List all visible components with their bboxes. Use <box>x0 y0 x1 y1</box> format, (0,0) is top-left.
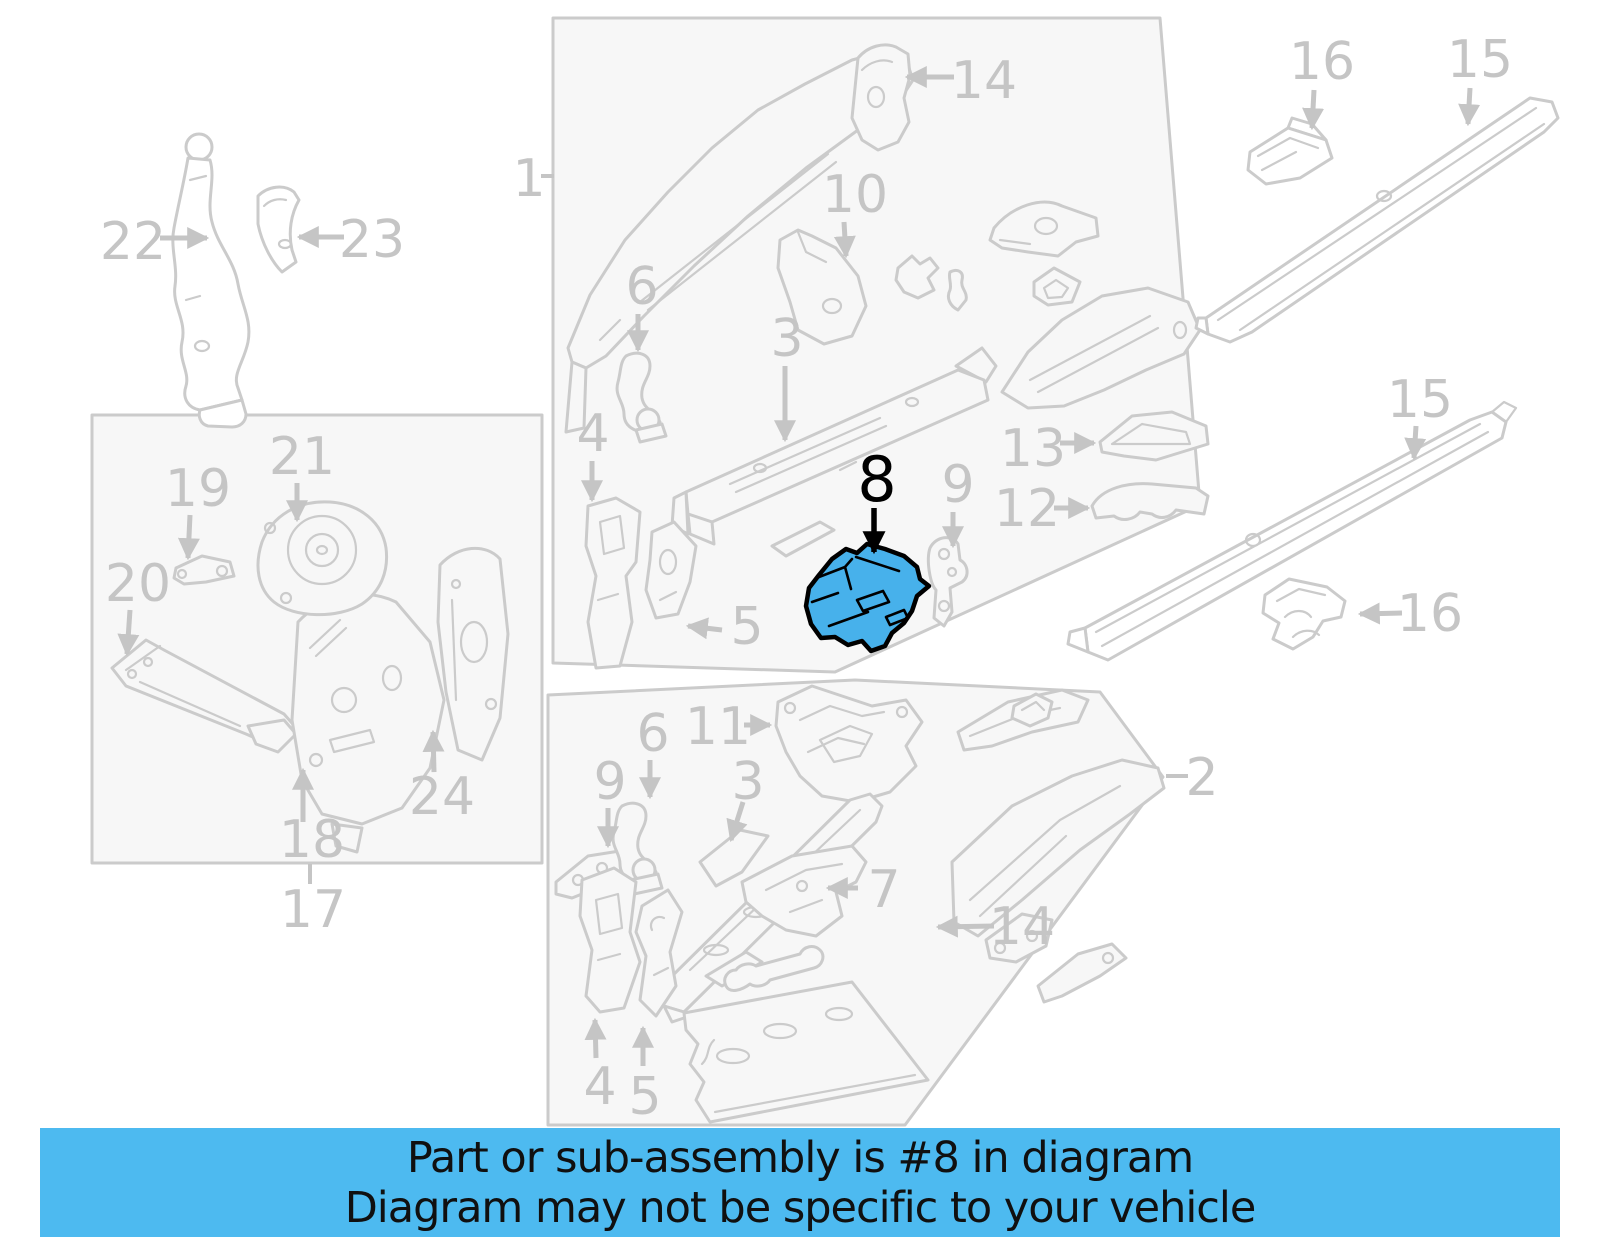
callout-label-14-top: 14 <box>951 51 1017 111</box>
callout-label-16-top: 16 <box>1289 32 1355 92</box>
callout-label-3-top: 3 <box>770 309 803 369</box>
callout-label-9-top: 9 <box>941 455 974 515</box>
callout-label-19: 19 <box>165 459 231 519</box>
part-16-top-bracket-shape <box>1248 118 1332 184</box>
callout-arrow-14-bottom <box>938 926 994 927</box>
callout-label-16-mid: 16 <box>1397 584 1463 644</box>
callout-arrow-20 <box>127 610 130 654</box>
callout-label-7: 7 <box>867 860 900 920</box>
callout-label-22: 22 <box>100 212 166 272</box>
callout-label-8: 8 <box>857 443 896 516</box>
callout-label-9-bottom: 9 <box>593 752 626 812</box>
banner-line-1: Part or sub-assembly is #8 in diagram <box>407 1133 1193 1183</box>
callout-label-2: 2 <box>1185 748 1218 808</box>
callout-label-1: 1 <box>512 149 545 209</box>
callout-label-6-top: 6 <box>625 257 658 317</box>
callout-label-17: 17 <box>280 880 346 940</box>
highlight-banner: Part or sub-assembly is #8 in diagram Di… <box>40 1128 1560 1237</box>
callout-label-3-bottom: 3 <box>731 752 764 812</box>
callout-label-12: 12 <box>994 479 1060 539</box>
callout-label-15-mid: 15 <box>1387 370 1453 430</box>
part-4-bottom-stiffener-shape <box>580 868 640 1012</box>
part-23-shape <box>258 187 299 272</box>
callout-arrow-15-top <box>1468 88 1470 124</box>
callout-arrow-19 <box>188 515 190 558</box>
callout-label-15-top: 15 <box>1447 30 1513 90</box>
callout-label-4-top: 4 <box>576 404 609 464</box>
callout-label-11: 11 <box>685 697 751 757</box>
callout-arrow-16-mid <box>1360 613 1402 614</box>
callout-arrow-24 <box>433 732 434 772</box>
callout-label-13: 13 <box>1000 419 1066 479</box>
callout-arrow-10 <box>844 222 846 256</box>
callout-label-4-bottom: 4 <box>583 1057 616 1117</box>
part-16-mid-bracket-shape <box>1263 579 1345 649</box>
callout-label-5-top: 5 <box>730 597 763 657</box>
callout-arrow-15-mid <box>1414 426 1416 458</box>
callout-label-23: 23 <box>339 210 405 270</box>
callout-label-14-bottom: 14 <box>989 897 1055 957</box>
callout-arrow-16-top <box>1312 90 1314 128</box>
part-22-shape <box>173 134 249 427</box>
parts-diagram-canvas: 2223114161510634891312515162192120241817… <box>0 0 1600 1249</box>
part-15-top-rail-shape <box>1196 98 1558 342</box>
part-21-strut-tower-shape <box>258 502 387 615</box>
banner-line-2: Diagram may not be specific to your vehi… <box>345 1183 1256 1233</box>
part-14-top-panel-shape <box>852 45 910 150</box>
callout-arrow-4-bottom <box>595 1020 596 1058</box>
small-hook-shape <box>948 270 966 310</box>
part-12-bracket-shape <box>1092 484 1208 520</box>
callout-label-10: 10 <box>822 165 888 225</box>
callout-label-5-bottom: 5 <box>628 1067 661 1127</box>
callout-label-6-bottom: 6 <box>636 704 669 764</box>
callout-label-18: 18 <box>279 810 345 870</box>
parts-diagram-page: 2223114161510634891312515162192120241817… <box>0 0 1600 1249</box>
callout-label-24: 24 <box>409 767 475 827</box>
callout-label-20: 20 <box>105 554 171 614</box>
callout-label-21: 21 <box>269 427 335 487</box>
